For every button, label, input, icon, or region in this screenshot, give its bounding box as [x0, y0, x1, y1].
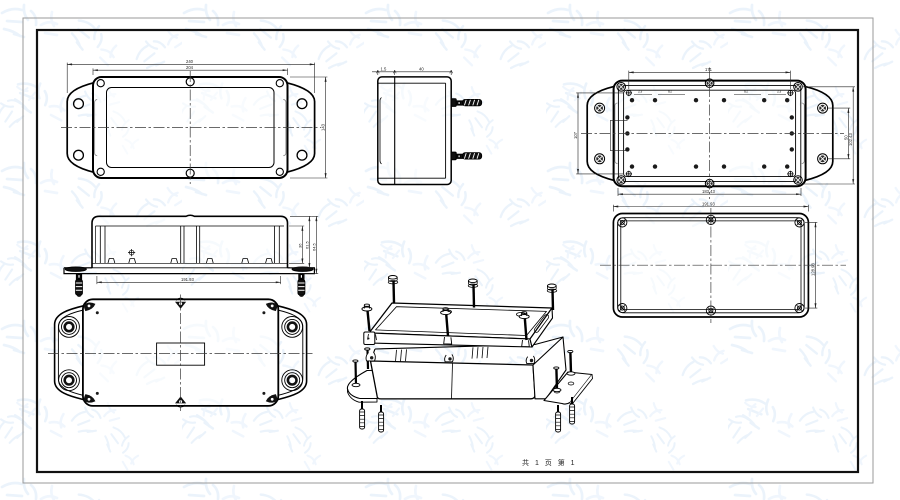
- svg-text:107: 107: [573, 131, 578, 139]
- svg-text:64.5: 64.5: [311, 242, 316, 251]
- svg-text:191.93: 191.93: [181, 277, 194, 282]
- svg-text:183.43: 183.43: [702, 189, 715, 194]
- svg-text:61.5: 61.5: [304, 240, 309, 249]
- svg-text:共 1 页 第 1: 共 1 页 第 1: [522, 458, 577, 467]
- svg-text:171: 171: [705, 67, 713, 72]
- svg-text:191.93: 191.93: [702, 201, 715, 206]
- svg-text:204: 204: [186, 65, 194, 70]
- svg-text:23: 23: [638, 90, 642, 94]
- svg-text:40: 40: [419, 67, 424, 72]
- svg-text:143: 143: [321, 123, 326, 131]
- svg-text:128.93: 128.93: [811, 263, 816, 276]
- svg-text:102.43: 102.43: [848, 133, 853, 146]
- svg-text:62: 62: [744, 90, 748, 94]
- svg-text:1.5: 1.5: [381, 67, 387, 72]
- svg-text:36: 36: [297, 243, 302, 248]
- svg-text:240: 240: [186, 59, 194, 64]
- svg-text:62: 62: [668, 90, 672, 94]
- svg-text:23: 23: [777, 90, 781, 94]
